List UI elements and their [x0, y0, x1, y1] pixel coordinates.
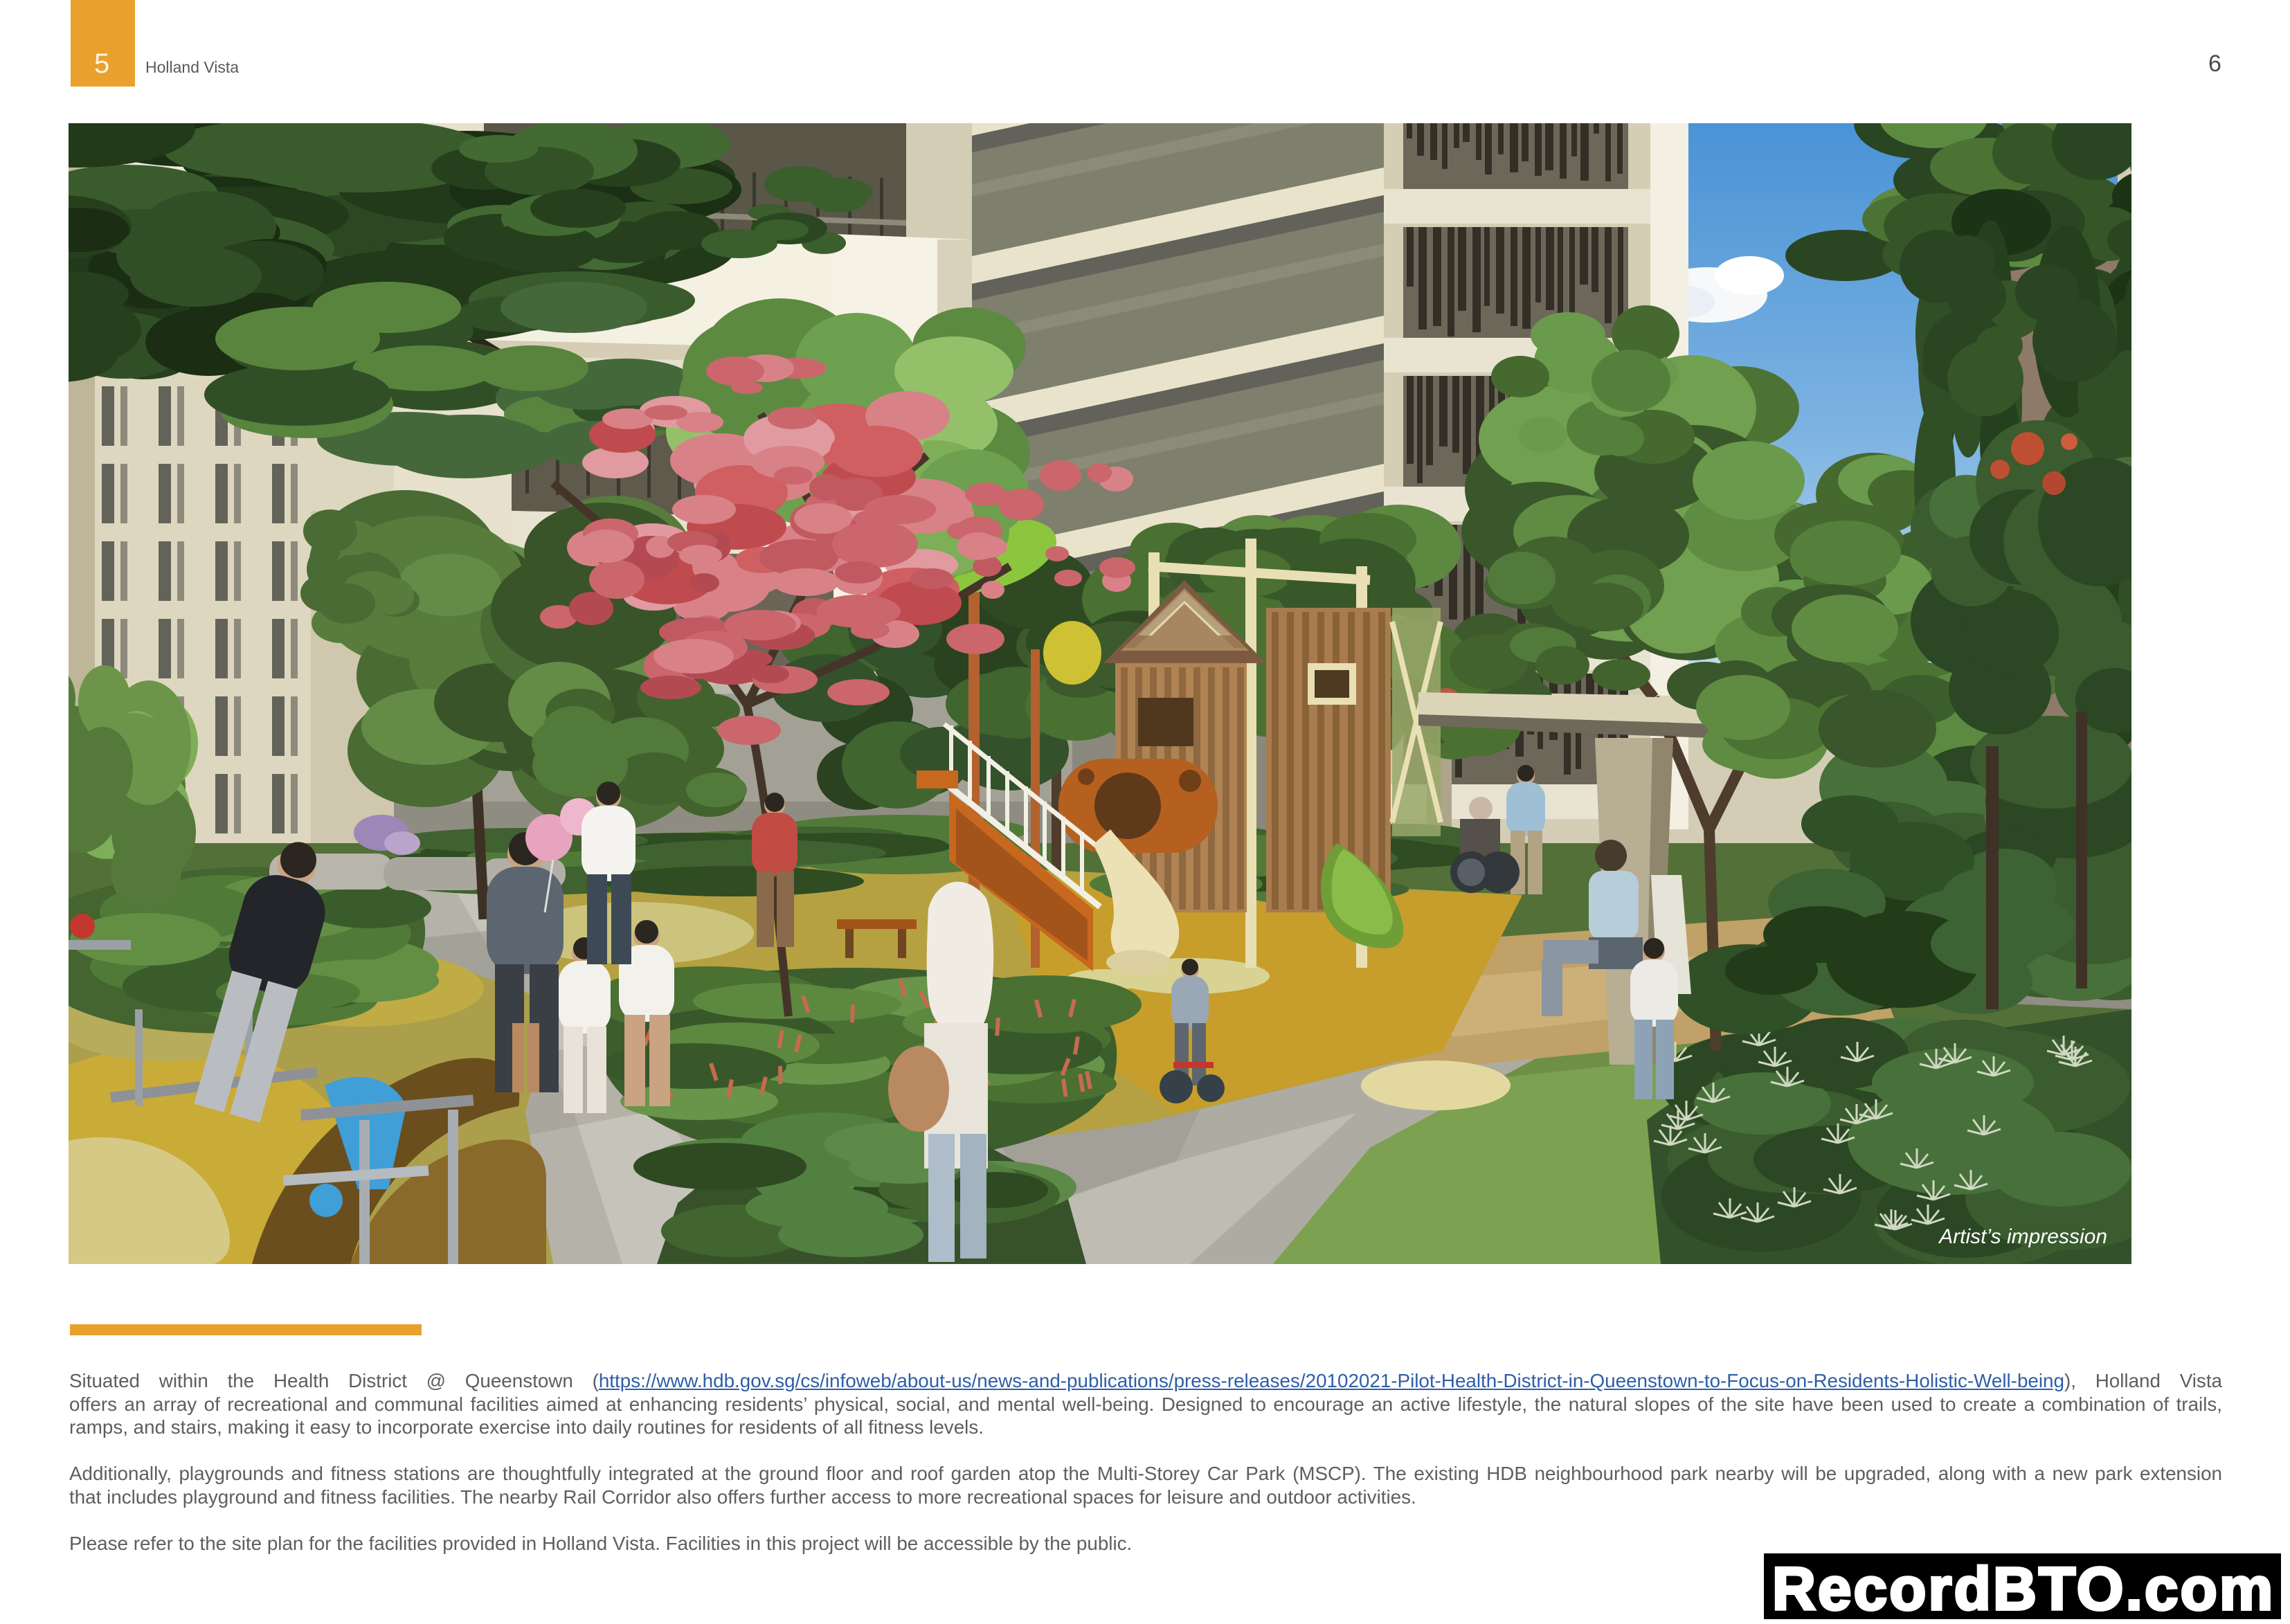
svg-text:Artist’s impression: Artist’s impression: [1938, 1225, 2107, 1248]
